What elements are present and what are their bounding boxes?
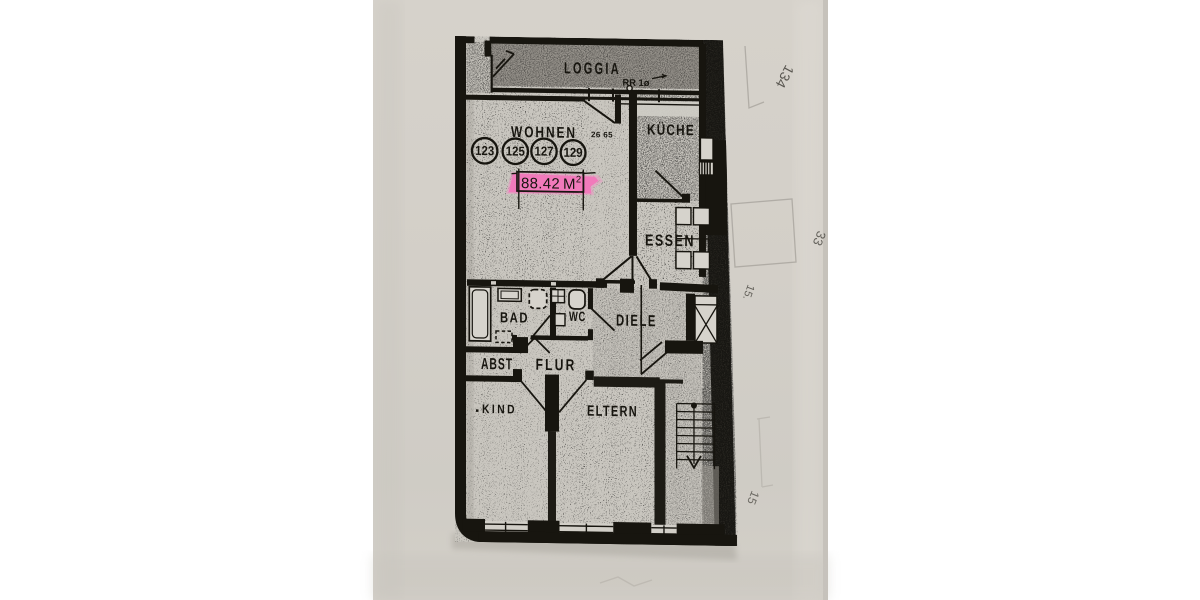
- svg-text:26 65: 26 65: [591, 130, 613, 139]
- svg-text:FLUR: FLUR: [536, 357, 577, 375]
- svg-text:KÜCHE: KÜCHE: [647, 122, 695, 140]
- svg-text:ABST: ABST: [481, 356, 513, 374]
- svg-text:DIELE: DIELE: [616, 313, 657, 331]
- svg-text:129: 129: [564, 145, 583, 160]
- svg-text:88.42M2: 88.42M2: [521, 174, 581, 193]
- svg-text:123: 123: [475, 143, 494, 158]
- svg-text:LOGGIA: LOGGIA: [564, 60, 621, 78]
- svg-text:WC: WC: [569, 309, 586, 324]
- svg-text:BAD: BAD: [500, 310, 529, 326]
- svg-text:KIND: KIND: [482, 402, 517, 417]
- svg-text:125: 125: [506, 143, 525, 158]
- svg-text:ESSEN: ESSEN: [645, 233, 695, 251]
- svg-text:ELTERN: ELTERN: [587, 403, 638, 421]
- svg-text:127: 127: [534, 143, 553, 158]
